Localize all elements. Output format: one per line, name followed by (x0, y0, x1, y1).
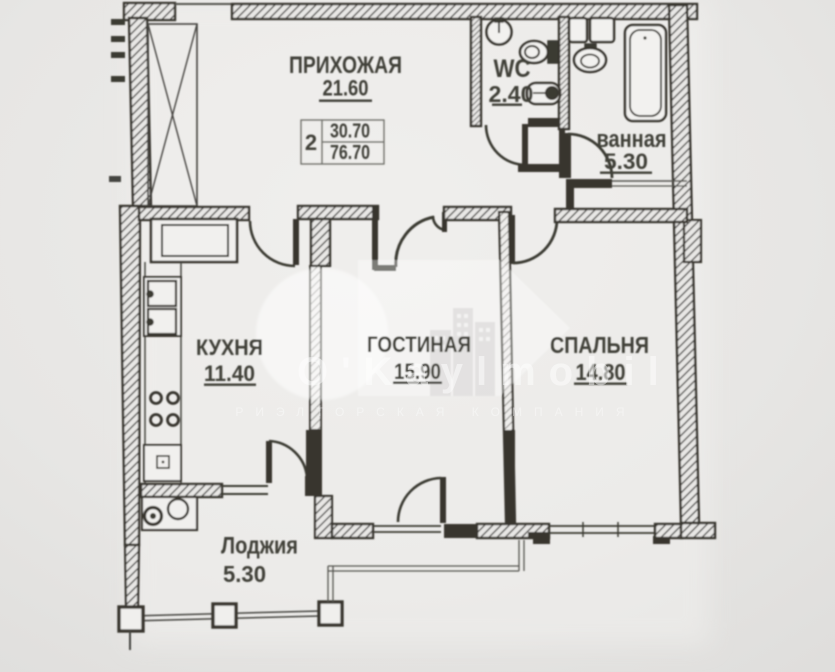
svg-text:76.70: 76.70 (330, 142, 370, 164)
svg-text:5.30: 5.30 (604, 149, 648, 174)
svg-text:КУХНЯ: КУХНЯ (196, 335, 263, 360)
svg-text:21.60: 21.60 (323, 76, 369, 101)
svg-text:2: 2 (305, 130, 317, 155)
svg-text:РИЭЛТОРСКАЯ КОМПАНИЯ: РИЭЛТОРСКАЯ КОМПАНИЯ (235, 405, 636, 419)
svg-text:30.70: 30.70 (330, 121, 370, 143)
svg-text:11.40: 11.40 (204, 361, 255, 386)
svg-text:2.40: 2.40 (489, 81, 534, 107)
svg-text:WC: WC (494, 55, 531, 83)
svg-text:O'Kaylmobil: O'Kaylmobil (297, 350, 672, 394)
svg-text:Лоджия: Лоджия (221, 533, 298, 560)
svg-text:5.30: 5.30 (223, 561, 266, 587)
